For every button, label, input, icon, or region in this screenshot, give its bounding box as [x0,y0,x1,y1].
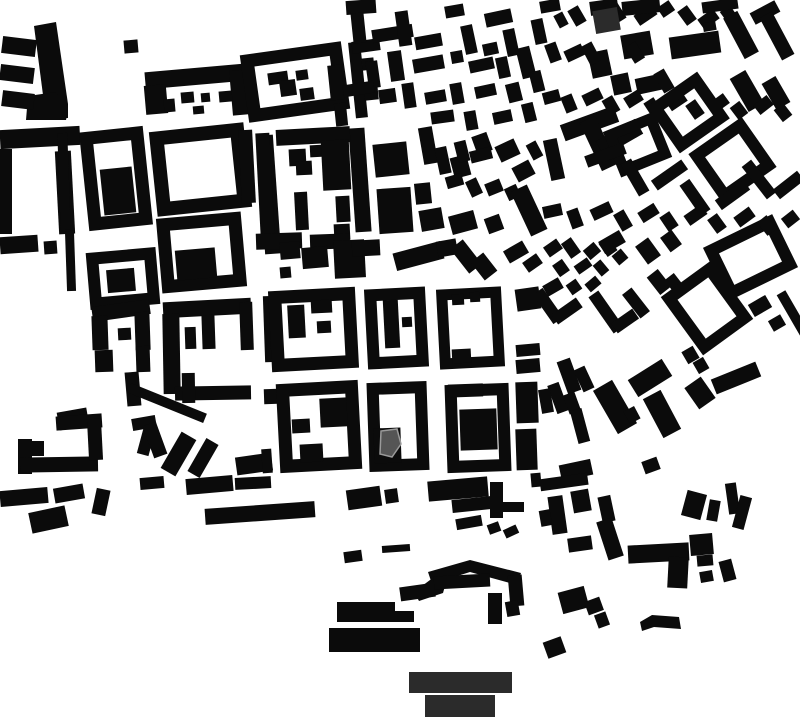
building-footprint [280,267,292,279]
building-footprint [593,380,637,434]
building-footprint [660,230,682,253]
building-footprint [384,488,399,504]
building-footprint [760,12,795,61]
building-footprint [581,87,603,106]
building-footprint [677,5,697,26]
building-footprint [193,106,205,115]
building-footprint [495,56,511,79]
building-footprint [311,299,333,313]
building-footprint [613,209,633,231]
building-footprint [162,314,180,394]
building-footprint [521,102,537,123]
building-footprint [185,475,233,495]
building-footprint [430,109,454,124]
building-footprint [455,515,483,530]
building-footprint [474,83,497,99]
building-footprint [465,177,483,197]
building-footprint [505,600,520,617]
building-footprint [544,42,562,64]
building-footprint [484,178,504,196]
building-footprint [87,419,103,461]
building-footprint [334,102,348,126]
building-footprint [32,441,44,456]
building-footprint [319,397,347,427]
building-footprint [409,672,512,693]
building-footprint [469,147,493,164]
building-footprint [418,207,444,232]
building-footprint [635,237,661,264]
building-footprint [1,90,35,110]
map-canvas [0,0,800,721]
building-footprint [0,126,80,149]
building-footprint [299,87,315,101]
building-footprint [53,484,85,504]
building-footprint [681,490,707,520]
building-footprint [65,231,76,291]
building-footprint [20,456,98,472]
building-footprint [0,149,12,234]
building-footprint [279,79,297,97]
building-footprint [219,90,233,102]
building-footprint [511,159,535,182]
building-footprint [287,305,306,339]
building-footprint [459,408,497,450]
building-footprint [574,257,593,274]
building-footprint [596,518,624,561]
building-footprint [448,210,478,235]
building-footprint [136,346,151,372]
building-footprint [542,203,563,219]
building-footprint [531,18,548,45]
building-footprint [412,54,445,73]
building-footprint [516,343,541,357]
building-footprint [515,429,537,471]
building-footprint [350,12,366,43]
building-footprint [181,91,195,103]
building-footprint [239,302,254,350]
building-footprint [553,11,568,28]
building-footprint [484,214,505,235]
building-footprint [543,138,565,181]
building-footprint [321,139,352,190]
building-footprint [452,349,472,364]
building-footprint [543,636,567,658]
building-footprint [748,295,772,317]
building-footprint [235,476,272,490]
building-footprint [452,294,465,306]
building-footprint [434,146,451,175]
building-footprint [372,141,409,177]
building-footprint [689,533,714,556]
building-footprint [460,24,478,55]
building-footprint [685,99,705,120]
figure-ground-map [0,0,800,721]
building-footprint [659,211,678,232]
building-footprint [697,554,714,566]
building-footprint [329,628,420,652]
building-footprint [543,238,563,257]
building-footprint [279,241,300,260]
building-footprint [515,382,538,424]
building-footprint [343,550,362,563]
building-footprint [444,3,465,18]
building-footprint [505,82,523,104]
building-footprint [1,36,37,57]
building-footprint [492,109,513,125]
building-footprint [401,82,416,108]
building-footprint [395,10,413,46]
building-footprint [558,586,590,614]
building-footprint [684,377,715,410]
building-footprint [294,192,309,231]
building-footprint [526,140,544,160]
building-footprint [487,521,502,535]
building-footprint [425,695,495,717]
building-footprint [561,237,581,259]
building-footprint [175,247,217,280]
building-footprint [502,502,524,512]
building-footprint [205,501,316,525]
building-footprint [641,457,660,475]
building-footprint [163,99,175,113]
building-footprint [781,210,800,229]
building-footprint [584,276,601,293]
building-footprint [300,443,324,462]
building-footprint [0,235,39,255]
building-footprint [317,321,332,334]
building-footprint [594,611,610,628]
building-footprint [450,50,464,64]
building-footprint [592,7,621,34]
building-footprint [637,203,659,223]
building-footprint [100,166,137,215]
building-footprint [383,300,400,349]
building-footprint [424,89,447,104]
building-footprint [707,213,727,234]
building-footprint [490,482,503,518]
building-footprint [185,327,197,349]
building-footprint [387,50,405,82]
building-footprint [348,128,371,233]
building-footprint [382,544,410,553]
building-footprint [296,161,313,176]
courtyard-block-outline [268,287,359,372]
building-footprint [539,0,561,14]
building-footprint [182,373,196,403]
building-footprint [570,408,590,444]
courtyard-block-outline [149,122,252,216]
building-footprint [706,499,720,522]
building-footprint [91,316,108,351]
building-footprint [418,126,438,165]
building-footprint [91,488,110,516]
building-footprint [301,246,329,269]
building-footprint [346,486,382,511]
building-footprint [503,524,519,538]
building-footprint [402,317,413,328]
building-footprint [719,559,737,583]
building-footprint [463,110,478,131]
building-footprint [643,390,681,438]
building-footprint [292,419,311,434]
building-footprint [414,182,432,205]
building-footprint [95,350,114,373]
building-footprint [201,315,215,349]
building-footprint [337,602,414,622]
building-footprint [376,187,413,234]
building-footprint [140,476,165,490]
building-footprint [566,208,584,230]
building-footprint [295,69,308,81]
building-footprint [0,487,49,507]
building-footprint [118,328,132,341]
building-footprint [378,88,397,104]
building-footprint [335,196,350,223]
building-footprint [470,292,481,303]
building-footprint [669,31,722,60]
building-footprint [106,268,136,293]
building-footprint [610,72,632,95]
building-footprint [484,8,513,27]
building-footprint [134,312,150,351]
building-footprint [589,201,613,221]
building-footprint [768,314,786,331]
building-footprint [583,242,601,260]
building-footprint [593,259,610,276]
building-footprint [494,138,520,162]
building-footprint [773,171,800,200]
building-footprint [567,535,593,552]
building-footprint [482,42,499,57]
building-footprint [261,449,273,474]
building-footprint [566,279,583,296]
building-footprint [522,253,543,273]
building-footprint [264,389,279,404]
building-footprint [567,5,586,27]
building-footprint [352,239,381,256]
building-footprint [510,184,547,236]
building-footprint [0,64,35,84]
building-footprint [570,489,592,514]
building-footprint [560,93,577,113]
building-footprint [123,39,138,53]
building-footprint [515,358,540,374]
building-footprint [448,383,483,397]
building-footprint [628,359,673,397]
building-footprint [414,33,443,50]
building-footprint [699,570,714,583]
building-footprint [503,240,529,263]
building-footprint [449,82,464,105]
building-footprint [488,593,502,624]
building-footprint [201,93,211,103]
building-footprint [28,505,69,533]
building-footprint [667,556,689,588]
building-footprint [445,173,465,189]
building-footprint [711,362,761,395]
building-footprint [44,241,58,255]
building-footprint [468,57,495,74]
building-footprint [597,495,615,523]
building-footprint [640,615,681,631]
building-footprint [552,259,570,277]
building-footprint [529,70,546,93]
building-footprint [542,89,562,105]
